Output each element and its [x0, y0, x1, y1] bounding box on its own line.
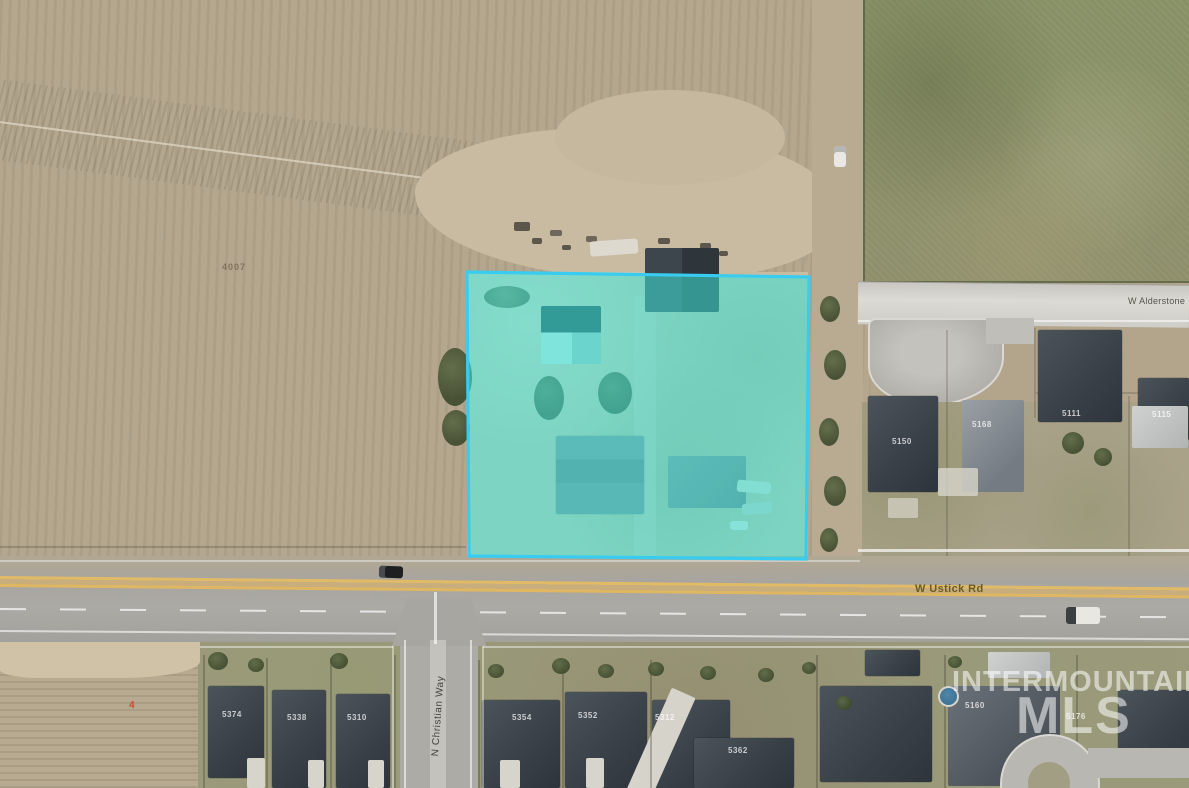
ustick-road-label: W Ustick Rd	[915, 583, 984, 595]
watermark-line2: MLS	[1016, 690, 1132, 742]
house-number: 5374	[222, 710, 242, 719]
field-parcel-number: 4007	[222, 262, 246, 272]
house-number: 5150	[892, 437, 912, 446]
house-number: 5111	[1062, 409, 1081, 418]
house-number: 5310	[347, 713, 367, 722]
aerial-map: W Alderstone W Ustick Rd	[0, 0, 1189, 788]
alderstone-road-label: W Alderstone	[1128, 296, 1185, 306]
house-number: 5352	[578, 711, 598, 720]
house-number: 5338	[287, 713, 307, 722]
house-number: 5354	[512, 713, 532, 722]
section-number-label: 4	[129, 700, 135, 711]
house-number: 5312	[655, 713, 675, 722]
house-number: 5160	[965, 701, 985, 710]
house-number: 5168	[972, 420, 992, 429]
house-number: 5362	[728, 746, 748, 755]
house-number: 5115	[1152, 410, 1171, 419]
